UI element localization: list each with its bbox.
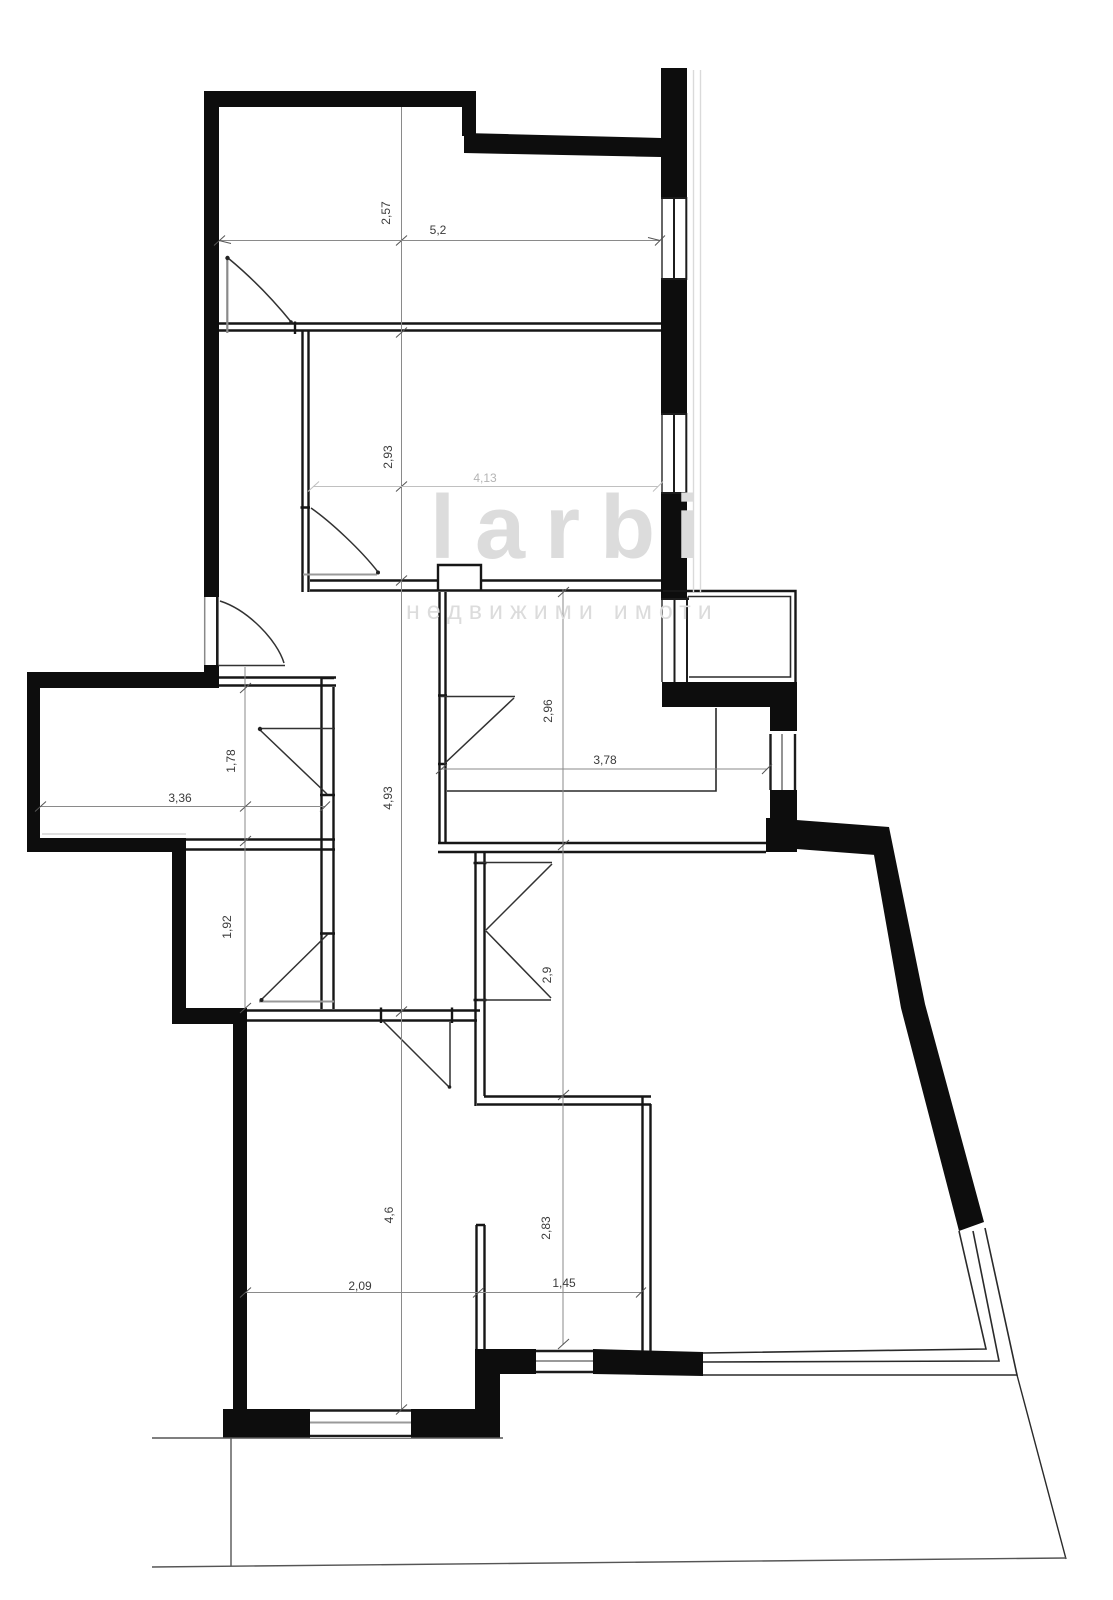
svg-text:2,93: 2,93 [381, 445, 395, 469]
svg-text:1,78: 1,78 [224, 749, 238, 773]
svg-text:1,45: 1,45 [552, 1276, 576, 1290]
svg-text:2,09: 2,09 [348, 1279, 372, 1293]
svg-text:4,93: 4,93 [381, 786, 395, 810]
svg-text:5,2: 5,2 [430, 223, 447, 237]
svg-text:4,6: 4,6 [382, 1206, 396, 1223]
svg-text:2,96: 2,96 [541, 699, 555, 723]
svg-text:2,83: 2,83 [539, 1216, 553, 1240]
svg-text:3,78: 3,78 [593, 753, 617, 767]
svg-text:2,57: 2,57 [379, 201, 393, 225]
svg-text:larbi: larbi [430, 478, 720, 578]
svg-text:2,9: 2,9 [540, 966, 554, 983]
svg-text:3,36: 3,36 [168, 791, 192, 805]
svg-text:1,92: 1,92 [220, 915, 234, 939]
svg-text:недвижими имоти: недвижими имоти [406, 597, 719, 625]
